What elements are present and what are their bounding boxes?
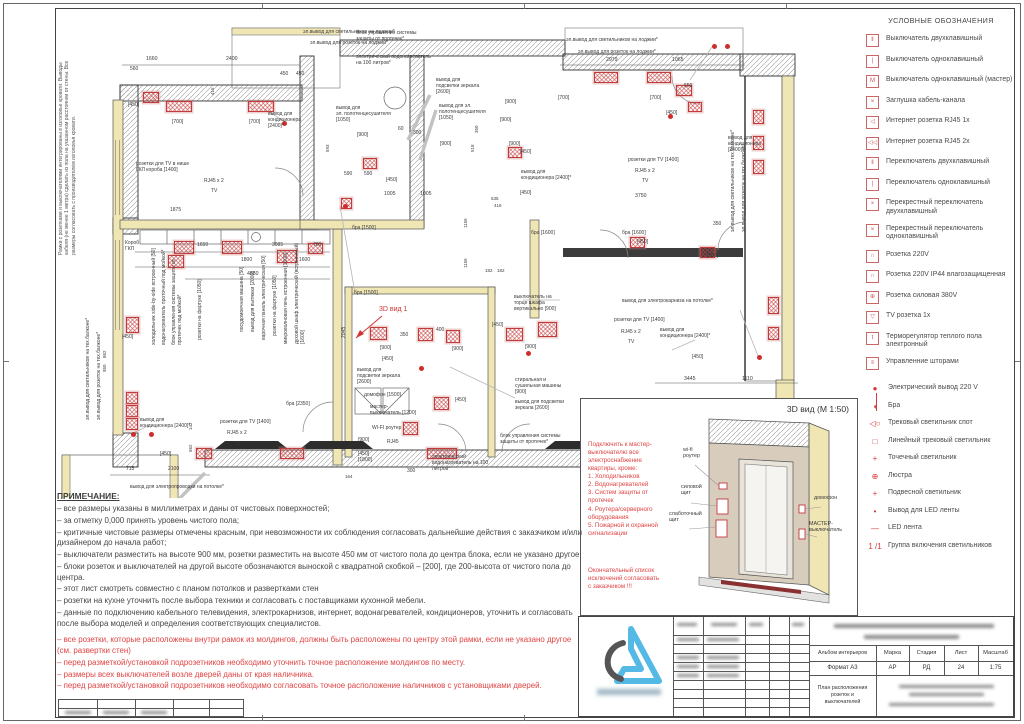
note-line: – выключатели разместить на высоте 900 м… [57, 550, 584, 561]
plan-label: розетки на фартуке [1050] [273, 275, 279, 336]
socket-symbol [143, 92, 159, 103]
socket-symbol [126, 418, 138, 430]
legend-item: +Точечный светильник [866, 454, 1016, 463]
socket-symbol [594, 72, 618, 83]
notes-title: ПРИМЕЧАНИЕ: [57, 491, 584, 501]
note-line: – этот лист смотреть совместно с планом … [57, 584, 584, 595]
plan-label: бра [2350] [286, 402, 310, 408]
plan-label: вывод для кондиционера [2400]* [268, 112, 301, 130]
switch-master-icon: M [866, 75, 879, 88]
plan-label: розетки для TV [1400] [220, 420, 271, 426]
marka-header: Марка [876, 645, 909, 661]
plan-label: холодильник side-by-side встроенный [50] [152, 248, 158, 345]
plan-label: 1156 [463, 258, 468, 268]
rj45-socket-1x-icon: ◁ [866, 116, 879, 129]
legend-item-label: Люстра [888, 472, 912, 481]
plan-label: [700] [249, 120, 260, 126]
note-line: – за отметку 0,000 принять уровень чисто… [57, 516, 584, 527]
plan-label: 1660 [146, 56, 158, 62]
toggle-one-key-icon: | [866, 178, 879, 191]
plan-label: вывод для подсветки зеркала [2600] [357, 368, 400, 386]
legend-item-label: Выключатель одноклавишный (мастер) [886, 76, 1012, 85]
plan-label: 415 [210, 87, 215, 95]
socket-symbol [166, 101, 192, 112]
plan-label: варочная панель электрическая [50] [262, 256, 268, 341]
plan-label: 2100 [168, 467, 179, 473]
stadia-value: РД [909, 661, 944, 675]
plan-label: 535 [491, 196, 499, 201]
plan-label: 1650 [197, 243, 208, 249]
light-group-icon: 1 /1 [866, 542, 884, 551]
plan-label: домофон [1500] [364, 393, 401, 399]
legend-item-label: Подвесной светильник [888, 489, 961, 498]
plan-label: TV [628, 340, 634, 346]
plan-label: 350 [713, 222, 721, 228]
legend-item: 1 /1Группа включения светильников [866, 542, 1016, 551]
view3d-label: домофон [814, 495, 837, 501]
tv-socket-icon: ▽ [866, 311, 879, 324]
plan-label: 550 [684, 84, 692, 90]
plan-label: выключатель на торце шкафа вертикально [… [514, 295, 556, 313]
plan-label: стиральная и сушильная машины [900] [515, 378, 561, 396]
legend-item-label: LED лента [888, 524, 922, 533]
plan-label: [700] [650, 96, 661, 102]
electric-outlet-dot [131, 432, 136, 437]
view3d-red-note: Подключить к мастер- выключателю все эле… [588, 441, 680, 538]
plan-label: 518 [470, 144, 475, 152]
plan-label: 590 [364, 172, 372, 178]
legend-item: ∩Розетка 220V IP44 влагозащищенная [866, 271, 1016, 283]
plan-label: 60 [398, 127, 404, 133]
plan-label: [900] [500, 118, 511, 124]
plan-label: 700 [313, 243, 321, 249]
plan-label: 182 [485, 268, 493, 273]
plan-label: 3750 [635, 193, 647, 199]
plan-label: [900] [505, 100, 516, 106]
legend-item-label: Линейный трековый светильник [888, 437, 990, 446]
plan-label: 450 [296, 72, 304, 78]
legend-item: ⊕Люстра [866, 472, 1016, 481]
legend-item: ∩Розетка 220V [866, 251, 1016, 263]
plan-label: электрический водонагреватель на 100 лит… [432, 455, 488, 473]
socket-symbol [418, 328, 433, 341]
plan-label: 590 [344, 172, 352, 178]
socket-symbol [363, 158, 377, 169]
frame-tick [524, 715, 525, 721]
socket-symbol [768, 297, 779, 314]
legend-item: ◖Бра [866, 402, 1016, 411]
company-logo [593, 625, 663, 687]
notes-block: ПРИМЕЧАНИЕ: – все размеры указаны в милл… [57, 491, 584, 693]
rj45-socket-2x-icon: ◁◁ [866, 137, 879, 150]
pendant-light-icon: + [866, 489, 884, 498]
legend-panel: УСЛОВНЫЕ ОБОЗНАЧЕНИЯ ‖Выключатель двухкл… [866, 16, 1016, 559]
plan-label: 593 [325, 144, 330, 152]
track-spot-light-icon: ◁○ [866, 419, 884, 428]
switch-one-key-icon: | [866, 55, 879, 68]
socket-symbol [753, 110, 764, 124]
view3d-drawing [681, 417, 851, 609]
legend-item: ≡Управленние шторами [866, 358, 1016, 370]
format-value: Формат А3 [809, 661, 876, 675]
plan-label: эл.вывод для розеток на лоджии* [578, 50, 656, 56]
plan-label: TV [211, 189, 217, 195]
view3d-label: слаботочный щит [669, 511, 702, 523]
legend-item: ◁Интернет розетка RJ45 1x [866, 117, 1016, 129]
plan-label: [450] [492, 323, 503, 329]
electric-outlet-220v-icon: ● [866, 384, 884, 393]
album-label: Альбом интерьеров [809, 645, 876, 661]
note-line-red: – все розетки, которые расположены внутр… [57, 635, 584, 657]
legend-item: ×Перекрестный переключатель двухклавишны… [866, 199, 1016, 216]
plan-label: водонагреватель проточный под мойкой* [162, 249, 168, 345]
plan-label: 1065 [672, 57, 684, 63]
plan-label: 3D вид 1 [379, 306, 407, 314]
socket-symbol [222, 241, 242, 254]
legend-item-label: Розетка 220V [886, 251, 929, 260]
note-line: – данные по подключению кабельного телев… [57, 608, 584, 630]
legend-item: ×Заглушка кабель-канала [866, 97, 1016, 109]
plan-label: электрический водонагреватель на 100 лит… [356, 55, 431, 67]
plan-label: 300 [407, 469, 415, 475]
plan-label: 1875 [170, 208, 181, 214]
socket-symbol [370, 327, 387, 340]
sheet-name: План расположения розеток и выключателей [809, 675, 876, 716]
plan-label: эл.вывод для светильников на тех.балконе… [86, 318, 92, 420]
plan-label: [700] [172, 120, 183, 126]
socket-symbol [403, 422, 418, 435]
plan-label: RJ45 x 2 [227, 431, 247, 437]
plan-label: WI-FI роутер [372, 426, 401, 432]
plan-label: 2045 [342, 327, 348, 338]
bottom-left-stamp [58, 699, 244, 717]
electric-outlet-dot [343, 204, 348, 209]
note-line-red: – перед разметкой/установкой подрозетник… [57, 658, 584, 669]
plan-label: вывод для электрокарниза на потолке* [622, 299, 713, 305]
legend-item-label: Электрический вывод 220 V [888, 384, 978, 393]
plan-label: RJ45 x 2 [635, 169, 655, 175]
plan-label: эл.вывод для светильников на тех.балконе… [731, 130, 737, 232]
project-title-censored [864, 635, 959, 639]
plan-label: TV [234, 442, 240, 448]
plan-label: 1005 [384, 191, 396, 197]
socket-symbol [434, 397, 449, 410]
plan-label: вывод для электропроводки на потолке* [130, 485, 224, 491]
plan-label: 350 [474, 125, 479, 133]
legend-item-label: Перекрестный переключатель двухклавишный [886, 199, 1016, 216]
floor-thermostat-icon: t [866, 332, 879, 345]
plan-label: 862 [102, 350, 107, 358]
electric-outlet-dot [725, 44, 730, 49]
switch-two-key-icon: ‖ [866, 34, 879, 47]
plan-label: [450] [666, 111, 677, 117]
electric-outlet-dot [712, 44, 717, 49]
legend-title: УСЛОВНЫЕ ОБОЗНАЧЕНИЯ [866, 16, 1016, 25]
stadia-header: Стадия [909, 645, 944, 661]
plan-label: эл.вывод для розеток на тех.балконе* [97, 332, 103, 420]
note-line: – розетки на кухне уточнить после выбора… [57, 596, 584, 607]
legend-item-label: Выключатель одноклавишный [886, 56, 983, 65]
plan-label: [450] [382, 357, 393, 363]
legend-item: MВыключатель одноклавишный (мастер) [866, 76, 1016, 88]
legend-item: •Вывод для LED ленты [866, 507, 1016, 516]
socket-380v-icon: ⊕ [866, 291, 879, 304]
plan-label: 1156 [463, 218, 468, 228]
plan-label: 560 [130, 67, 138, 73]
legend-item-label: Управленние шторами [886, 358, 959, 367]
chandelier-icon: ⊕ [866, 472, 884, 481]
legend-item: ◁○Трековый светильник спот [866, 419, 1016, 428]
plan-label: [900] [707, 254, 718, 260]
plan-label: вывод для кондиционера [2400]* [140, 418, 190, 430]
plan-label: бра [1500] [354, 291, 378, 297]
legend-item: |Переключатель одноклавишный [866, 179, 1016, 191]
plan-label: [450] [1800] [358, 452, 372, 464]
plan-label: духовой шкаф электрический (встроенный) … [295, 243, 307, 344]
plan-label: [450] [520, 150, 531, 156]
plan-label: 400 [436, 328, 444, 334]
view3d-red-note-2: Окончательный список исключений согласов… [588, 567, 683, 591]
plan-label: RJ45 [387, 440, 399, 446]
company-logo-word [597, 689, 661, 695]
legend-item: ‖Переключатель двухклавишный [866, 158, 1016, 170]
socket-220v-icon: ∩ [866, 250, 879, 263]
plan-label: [450] [160, 452, 171, 458]
electric-outlet-dot [419, 366, 424, 371]
legend-item: ◁◁Интернет розетка RJ45 2x [866, 138, 1016, 150]
plan-label: 950 [102, 364, 107, 372]
plan-label: [450] [692, 355, 703, 361]
legend-item-label: Трековый светильник спот [888, 419, 973, 428]
notes-black: – все размеры указаны в миллиметрах и да… [57, 504, 584, 629]
plan-label: вывод для вытяжки [2000] [251, 271, 257, 332]
socket-symbol [446, 330, 460, 343]
plan-label: блок управления системы защиты от протеч… [356, 31, 416, 43]
view3d-title: 3D вид (М 1:50) [787, 404, 849, 414]
cross-toggle-two-key-icon: × [866, 198, 879, 211]
masshtab-header: Масштаб [978, 645, 1013, 661]
toggle-two-key-icon: ‖ [866, 157, 879, 170]
socket-220v-ip44-icon: ∩ [866, 270, 879, 283]
electric-outlet-dot [526, 351, 531, 356]
legend-item-label: Розетка 220V IP44 влагозащищенная [886, 271, 1005, 280]
plan-label: TV [642, 179, 648, 185]
plan-label: 1005 [420, 191, 432, 197]
note-line: – все размеры указаны в миллиметрах и да… [57, 504, 584, 515]
legend-item-label: Группа включения светильников [888, 542, 992, 551]
socket-symbol [280, 448, 304, 459]
legend-item-label: Вывод для LED ленты [888, 507, 960, 516]
list-header: Лист [944, 645, 978, 661]
plan-label: 182 [497, 268, 505, 273]
drawing-sheet: Рамки с розетками и выключателями интегр… [0, 0, 1024, 724]
plan-label: бра [1600] [622, 231, 646, 237]
note-line-red: – размеры всех выключателей возле дверей… [57, 670, 584, 681]
legend-item: +Подвесной светильник [866, 489, 1016, 498]
socket-symbol [768, 327, 779, 340]
legend-item: □Линейный трековый светильник [866, 437, 1016, 446]
plan-label: 3445 [684, 376, 696, 382]
cable-channel-cap-icon: × [866, 96, 879, 109]
point-light-icon: + [866, 454, 884, 463]
list-value: 24 [944, 661, 978, 675]
legend-item: ⊕Розетка силовая 380V [866, 292, 1016, 304]
plan-label: [900] [380, 346, 391, 352]
plan-label: розетки для TV в нише ГКЛ короба [1400] [136, 162, 189, 174]
legend-light-items: ●Электрический вывод 220 V◖Бра◁○Трековый… [866, 384, 1016, 551]
plan-label: розетки на фартуке [1050] [198, 279, 204, 340]
masshtab-value: 1:75 [978, 661, 1013, 675]
plan-label: 142 [188, 422, 193, 430]
plan-label: вывод для эл. полотенцесушителя [1050] [439, 104, 486, 122]
legend-item-label: Терморегулятор теплого пола электронный [886, 333, 1016, 350]
legend-item-label: Бра [888, 402, 900, 411]
legend-item-label: Переключатель одноклавишный [886, 179, 990, 188]
legend-item-label: Заглушка кабель-канала [886, 97, 965, 106]
socket-symbol [753, 160, 764, 174]
plan-label: розетки для TV [1400] [614, 318, 665, 324]
plan-label: посудомоечная машина [50] [240, 267, 246, 332]
socket-symbol [126, 405, 138, 417]
legend-item: |Выключатель одноклавишный [866, 56, 1016, 68]
project-title-censored [834, 624, 994, 628]
marka-value: АР [876, 661, 909, 675]
linear-track-light-icon: □ [866, 437, 884, 446]
legend-item-label: Переключатель двухклавишный [886, 158, 989, 167]
legend-item-label: Выключатель двухклавишный [886, 35, 982, 44]
plan-label: 164 [345, 474, 353, 479]
socket-symbol [538, 322, 557, 337]
view3d-label: МАСТЕР- выключатель [809, 521, 842, 533]
plan-label: RJ45 x 2 [621, 330, 641, 336]
plan-label: блок управления системы защиты от протеч… [500, 434, 560, 446]
legend-item-label: Интернет розетка RJ45 2x [886, 138, 970, 147]
legend-item: tТерморегулятор теплого пола электронный [866, 333, 1016, 350]
legend-item-label: Перекрестный переключатель одноклавишный [886, 225, 1016, 242]
legend-item: ‖Выключатель двухклавишный [866, 35, 1016, 47]
legend-item: ▽TV розетка 1x [866, 312, 1016, 324]
legend-items: ‖Выключатель двухклавишный|Выключатель о… [866, 35, 1016, 370]
socket-symbol [506, 328, 523, 341]
plan-label: [450] [637, 240, 648, 246]
plan-label: вывод для подсветки зеркала [2600] [436, 78, 479, 96]
plan-label: [450] [128, 103, 139, 109]
plan-label: [450] [455, 398, 466, 404]
titleblock: Альбом интерьеров Марка Стадия Лист Масш… [578, 616, 1014, 717]
cross-toggle-one-key-icon: × [866, 224, 879, 237]
plan-label: 300 [413, 131, 421, 137]
plan-label: [450] [520, 191, 531, 197]
plan-label: вывод для кондиционера [2400]* [660, 328, 710, 340]
socket-symbol [126, 317, 139, 333]
electric-outlet-dot [149, 432, 154, 437]
plan-label: микроволновая печь встроенная [1600] [284, 253, 290, 344]
plan-label: 2979 [606, 57, 618, 63]
electric-outlet-dot [757, 355, 762, 360]
legend-item: ●Электрический вывод 220 V [866, 384, 1016, 393]
view3d-label: wi-fi роутер [683, 447, 700, 459]
legend-item-label: Интернет розетка RJ45 1x [886, 117, 970, 126]
plan-label: [450] [122, 335, 133, 341]
notes-red: – все розетки, которые расположены внутр… [57, 635, 584, 692]
balcony-outline [232, 28, 340, 88]
plan-label: мастер- выключатель [1200] [370, 405, 416, 417]
plan-label: бра [1500] [352, 226, 376, 232]
legend-item-label: TV розетка 1x [886, 312, 930, 321]
plan-label: 1110 [742, 376, 753, 382]
led-strip-outlet-icon: • [866, 507, 884, 516]
note-line-red: – перед разметкой/установкой подрозетник… [57, 681, 584, 692]
plan-label: блок управления системы защиты от протеч… [172, 259, 184, 345]
frame-tick [262, 715, 263, 721]
plan-label: [900] [525, 345, 536, 351]
view3d-label: силовой щит [681, 484, 702, 496]
legend-divider [876, 393, 877, 411]
note-line: – критичные чистовые размеры отмечены кр… [57, 528, 584, 550]
legend-item-label: Точечный светильник [888, 454, 957, 463]
view3d-panel: 3D вид (М 1:50) Подключить к мастер- вык… [580, 398, 858, 616]
plan-label: вывод для эл. полотенцесушителя [1050] [336, 106, 391, 124]
plan-label: 3085 [272, 243, 283, 249]
plan-label: вывод для подсветки зеркала [2600] [515, 400, 564, 412]
frame-tick [3, 361, 9, 362]
plan-label: [900] [452, 347, 463, 353]
plan-label: вывод для кондиционера [2400]* [521, 170, 571, 182]
socket-symbol [647, 72, 671, 83]
plan-label: 416 [494, 203, 502, 208]
plan-label: RJ45 x 2 [204, 179, 224, 185]
socket-symbol [196, 448, 212, 459]
sconce-icon: ◖ [866, 402, 884, 411]
socket-symbol [688, 102, 702, 112]
plan-label: эл.вывод для розеток на тех.балконе* [742, 144, 748, 232]
plan-label: [900] [440, 142, 451, 148]
plan-label: эл.вывод для светильников на лоджии* [566, 38, 658, 44]
plan-label: [900] [357, 133, 368, 139]
plan-label: [700] [558, 96, 569, 102]
led-strip-icon: — [866, 524, 884, 533]
legend-item: ×Перекрестный переключатель одноклавишны… [866, 225, 1016, 242]
plan-label: [450] [386, 178, 397, 184]
plan-label: 715 [126, 467, 134, 473]
plan-label: бра [1600] [531, 231, 555, 237]
socket-symbol [174, 241, 194, 254]
plan-label: [900] [509, 142, 520, 148]
plan-label: [900] [358, 438, 369, 444]
curtain-control-icon: ≡ [866, 357, 879, 370]
plan-label: Короб ГКЛ [125, 241, 139, 253]
note-line: – блоки розеток и выключателей на другой… [57, 562, 584, 584]
plan-label: 2400 [226, 56, 238, 62]
legend-item-label: Розетка силовая 380V [886, 292, 957, 301]
plan-label: 450 [280, 72, 288, 78]
socket-symbol [126, 392, 138, 404]
plan-label: 350 [400, 333, 408, 339]
legend-item: —LED лента [866, 524, 1016, 533]
plan-label: розетки для TV [1400] [628, 158, 679, 164]
plan-label: 562 [188, 444, 193, 452]
plan-label: 1800 [241, 258, 252, 264]
